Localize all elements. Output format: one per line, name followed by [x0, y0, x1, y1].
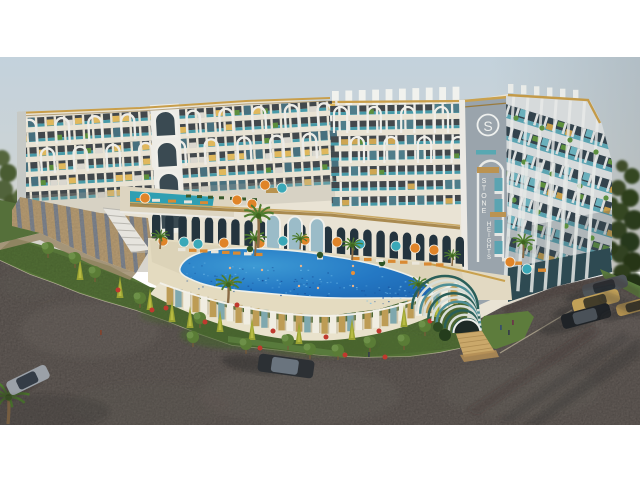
svg-text:T: T [482, 186, 487, 193]
svg-text:S: S [483, 118, 492, 134]
svg-text:S: S [482, 178, 487, 185]
svg-text:N: N [481, 201, 486, 208]
svg-text:E: E [482, 208, 487, 215]
svg-text:O: O [481, 193, 487, 200]
svg-text:S: S [487, 255, 491, 261]
